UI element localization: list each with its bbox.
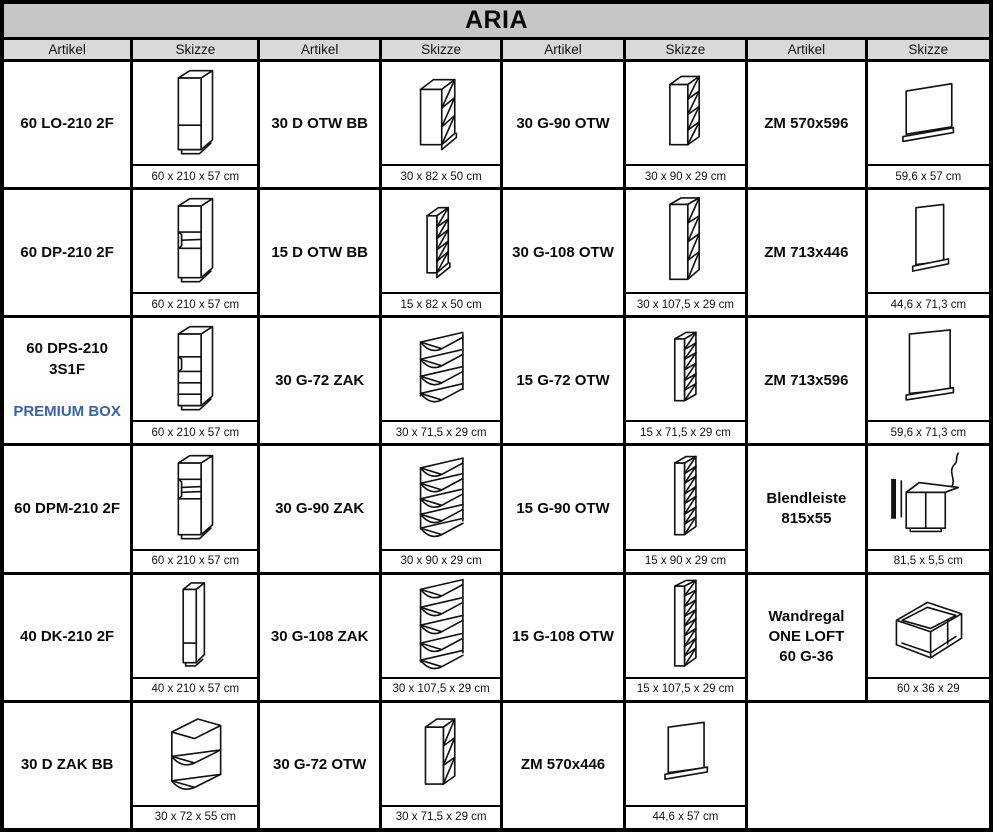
column-header-skizze-2: Skizze <box>382 40 500 59</box>
sketch-cell: 30 x 90 x 29 cm <box>626 62 745 187</box>
catalog-table: ARIA Artikel Skizze Artikel Skizze Artik… <box>0 0 993 832</box>
dimensions-label: 15 x 90 x 29 cm <box>626 549 745 572</box>
empty-cell <box>748 703 989 828</box>
sketch-cell: 15 x 90 x 29 cm <box>626 446 745 571</box>
wall-open-shelf-4-tall-sketch <box>634 193 737 289</box>
wall-open-shelf-4-tall-icon <box>626 190 745 292</box>
sketch-cell: 40 x 210 x 57 cm <box>133 575 257 700</box>
corner-open-shelf-4-sketch <box>390 321 492 417</box>
dimensions-label: 30 x 107,5 x 29 cm <box>626 292 745 315</box>
tall-narrow-cabinet-icon <box>133 575 257 677</box>
sketch-cell: 60 x 36 x 29 <box>868 575 989 700</box>
article-label: Blendleiste 815x55 <box>766 489 846 530</box>
narrow-base-open-shelf-icon <box>382 190 500 292</box>
narrow-wall-open-shelf-8-sketch <box>634 578 737 674</box>
article-label: 30 G-72 OTW <box>273 755 366 775</box>
article-cell: 30 D OTW BB <box>260 62 378 187</box>
article-label: 30 G-72 ZAK <box>275 371 364 391</box>
article-label: 30 G-108 ZAK <box>271 627 369 647</box>
dimensions-label: 30 x 107,5 x 29 cm <box>382 677 500 700</box>
tall-drawer-cabinet-icon <box>133 318 257 420</box>
filler-strip-icon <box>868 446 989 548</box>
sketch-cell: 15 x 107,5 x 29 cm <box>626 575 745 700</box>
article-label: 30 D ZAK BB <box>21 755 114 775</box>
wall-open-shelf-3-icon <box>382 703 500 805</box>
article-label: 60 DPS-210 3S1F PREMIUM BOX <box>8 319 126 443</box>
column-header-skizze-4: Skizze <box>868 40 989 59</box>
article-cell: 60 DPS-210 3S1F PREMIUM BOX <box>4 318 130 443</box>
dimensions-label: 60 x 210 x 57 cm <box>133 292 257 315</box>
dimensions-label: 30 x 90 x 29 cm <box>626 164 745 187</box>
narrow-wall-open-shelf-7-icon <box>626 446 745 548</box>
narrow-wall-open-shelf-8-icon <box>626 575 745 677</box>
column-header-artikel-3: Artikel <box>503 40 622 59</box>
corner-open-shelf-5-icon <box>382 446 500 548</box>
article-label: 30 G-90 OTW <box>516 114 609 134</box>
sketch-cell: 44,6 x 71,3 cm <box>868 190 989 315</box>
sketch-cell: 60 x 210 x 57 cm <box>133 318 257 443</box>
narrow-wall-open-shelf-7-sketch <box>634 450 737 546</box>
dimensions-label: 60 x 210 x 57 cm <box>133 420 257 443</box>
article-cell: 30 G-72 OTW <box>260 703 378 828</box>
article-label: ZM 713x446 <box>764 243 848 263</box>
article-label-line1: 60 DPS-210 3S1F <box>8 339 126 380</box>
sketch-cell: 15 x 71,5 x 29 cm <box>626 318 745 443</box>
narrow-wall-open-shelf-6-icon <box>626 318 745 420</box>
wall-open-shelf-4-sketch <box>634 65 737 161</box>
dimensions-label: 44,6 x 71,3 cm <box>868 292 989 315</box>
article-cell: 30 G-90 OTW <box>503 62 622 187</box>
article-cell: Blendleiste 815x55 <box>748 446 865 571</box>
corner-open-shelf-5-tall-icon <box>382 575 500 677</box>
article-label: 15 D OTW BB <box>271 243 368 263</box>
sketch-cell: 30 x 72 x 55 cm <box>133 703 257 828</box>
article-cell: 30 G-90 ZAK <box>260 446 378 571</box>
dimensions-label: 81,5 x 5,5 cm <box>868 549 989 572</box>
sketch-cell: 30 x 82 x 50 cm <box>382 62 500 187</box>
corner-open-shelf-4-icon <box>382 318 500 420</box>
column-header-artikel-4: Artikel <box>748 40 865 59</box>
tall-microwave-cabinet-sketch <box>142 450 249 546</box>
article-label: 60 LO-210 2F <box>20 114 113 134</box>
wall-open-shelf-3-sketch <box>390 706 492 802</box>
front-panel-tall-wide-icon <box>868 318 989 420</box>
article-cell: ZM 713x596 <box>748 318 865 443</box>
sketch-cell: 30 x 90 x 29 cm <box>382 446 500 571</box>
column-header-artikel-2: Artikel <box>260 40 378 59</box>
article-cell: 60 DP-210 2F <box>4 190 130 315</box>
sketch-cell: 60 x 210 x 57 cm <box>133 190 257 315</box>
dimensions-label: 59,6 x 57 cm <box>868 164 989 187</box>
sketch-cell: 59,6 x 71,3 cm <box>868 318 989 443</box>
base-open-shelf-sketch <box>390 65 492 161</box>
article-label: 40 DK-210 2F <box>20 627 114 647</box>
article-label: ZM 570x446 <box>521 755 605 775</box>
article-cell: ZM 570x446 <box>503 703 622 828</box>
tall-cabinet-2-door-sketch <box>142 65 249 161</box>
tall-oven-cabinet-sketch <box>142 193 249 289</box>
dimensions-label: 30 x 71,5 x 29 cm <box>382 805 500 828</box>
article-cell: Wandregal ONE LOFT 60 G-36 <box>748 575 865 700</box>
article-label: Wandregal ONE LOFT 60 G-36 <box>768 607 844 668</box>
sketch-cell: 30 x 71,5 x 29 cm <box>382 318 500 443</box>
article-label: ZM 713x596 <box>764 371 848 391</box>
front-panel-wide-sketch <box>876 65 980 161</box>
sketch-cell: 59,6 x 57 cm <box>868 62 989 187</box>
dimensions-label: 60 x 36 x 29 <box>868 677 989 700</box>
article-cell: 60 LO-210 2F <box>4 62 130 187</box>
sketch-cell: 30 x 71,5 x 29 cm <box>382 703 500 828</box>
dimensions-label: 30 x 82 x 50 cm <box>382 164 500 187</box>
open-frame-shelf-icon <box>868 575 989 677</box>
dimensions-label: 15 x 71,5 x 29 cm <box>626 420 745 443</box>
corner-open-shelf-5-sketch <box>390 450 492 546</box>
front-panel-tall-narrow-icon <box>868 190 989 292</box>
article-label: 60 DP-210 2F <box>20 243 113 263</box>
dimensions-label: 30 x 72 x 55 cm <box>133 805 257 828</box>
sketch-cell: 15 x 82 x 50 cm <box>382 190 500 315</box>
column-header-artikel-1: Artikel <box>4 40 130 59</box>
article-cell: 30 G-108 ZAK <box>260 575 378 700</box>
narrow-base-open-shelf-sketch <box>390 193 492 289</box>
sketch-cell: 30 x 107,5 x 29 cm <box>626 190 745 315</box>
tall-oven-cabinet-icon <box>133 190 257 292</box>
dimensions-label: 15 x 82 x 50 cm <box>382 292 500 315</box>
article-cell: 30 D ZAK BB <box>4 703 130 828</box>
article-cell: ZM 713x446 <box>748 190 865 315</box>
base-corner-open-shelf-icon <box>133 703 257 805</box>
dimensions-label: 30 x 90 x 29 cm <box>382 549 500 572</box>
sketch-cell: 44,6 x 57 cm <box>626 703 745 828</box>
sketch-cell: 60 x 210 x 57 cm <box>133 62 257 187</box>
article-label: 15 G-108 OTW <box>512 627 614 647</box>
article-cell: 15 G-72 OTW <box>503 318 622 443</box>
article-cell: 30 G-72 ZAK <box>260 318 378 443</box>
sketch-cell: 30 x 107,5 x 29 cm <box>382 575 500 700</box>
tall-drawer-cabinet-sketch <box>142 321 249 417</box>
article-cell: 60 DPM-210 2F <box>4 446 130 571</box>
column-header-skizze-3: Skizze <box>626 40 745 59</box>
corner-open-shelf-5-tall-sketch <box>390 578 492 674</box>
tall-cabinet-2-door-icon <box>133 62 257 164</box>
front-panel-wide-icon <box>868 62 989 164</box>
tall-microwave-cabinet-icon <box>133 446 257 548</box>
article-label: 30 G-90 ZAK <box>275 499 364 519</box>
front-panel-small-sketch <box>634 706 737 802</box>
base-open-shelf-icon <box>382 62 500 164</box>
dimensions-label: 15 x 107,5 x 29 cm <box>626 677 745 700</box>
wall-open-shelf-4-icon <box>626 62 745 164</box>
article-cell: 15 G-90 OTW <box>503 446 622 571</box>
column-header-skizze-1: Skizze <box>133 40 257 59</box>
article-label: 60 DPM-210 2F <box>14 499 120 519</box>
article-cell: 15 G-108 OTW <box>503 575 622 700</box>
page-title: ARIA <box>4 4 989 37</box>
dimensions-label: 60 x 210 x 57 cm <box>133 549 257 572</box>
filler-strip-sketch <box>876 450 980 546</box>
dimensions-label: 59,6 x 71,3 cm <box>868 420 989 443</box>
open-frame-shelf-sketch <box>876 578 980 674</box>
front-panel-tall-wide-sketch <box>876 321 980 417</box>
article-cell: 15 D OTW BB <box>260 190 378 315</box>
article-cell: ZM 570x596 <box>748 62 865 187</box>
sketch-cell: 81,5 x 5,5 cm <box>868 446 989 571</box>
base-corner-open-shelf-sketch <box>142 706 249 802</box>
dimensions-label: 60 x 210 x 57 cm <box>133 164 257 187</box>
article-cell: 30 G-108 OTW <box>503 190 622 315</box>
dimensions-label: 40 x 210 x 57 cm <box>133 677 257 700</box>
dimensions-label: 44,6 x 57 cm <box>626 805 745 828</box>
article-label: 15 G-72 OTW <box>516 371 609 391</box>
article-label: 15 G-90 OTW <box>516 499 609 519</box>
article-label: 30 D OTW BB <box>271 114 368 134</box>
tall-narrow-cabinet-sketch <box>142 578 249 674</box>
front-panel-small-icon <box>626 703 745 805</box>
article-label: ZM 570x596 <box>764 114 848 134</box>
premium-box-label: PREMIUM BOX <box>8 402 126 422</box>
article-label: 30 G-108 OTW <box>512 243 614 263</box>
narrow-wall-open-shelf-6-sketch <box>634 321 737 417</box>
front-panel-tall-narrow-sketch <box>876 193 980 289</box>
article-cell: 40 DK-210 2F <box>4 575 130 700</box>
sketch-cell: 60 x 210 x 57 cm <box>133 446 257 571</box>
dimensions-label: 30 x 71,5 x 29 cm <box>382 420 500 443</box>
